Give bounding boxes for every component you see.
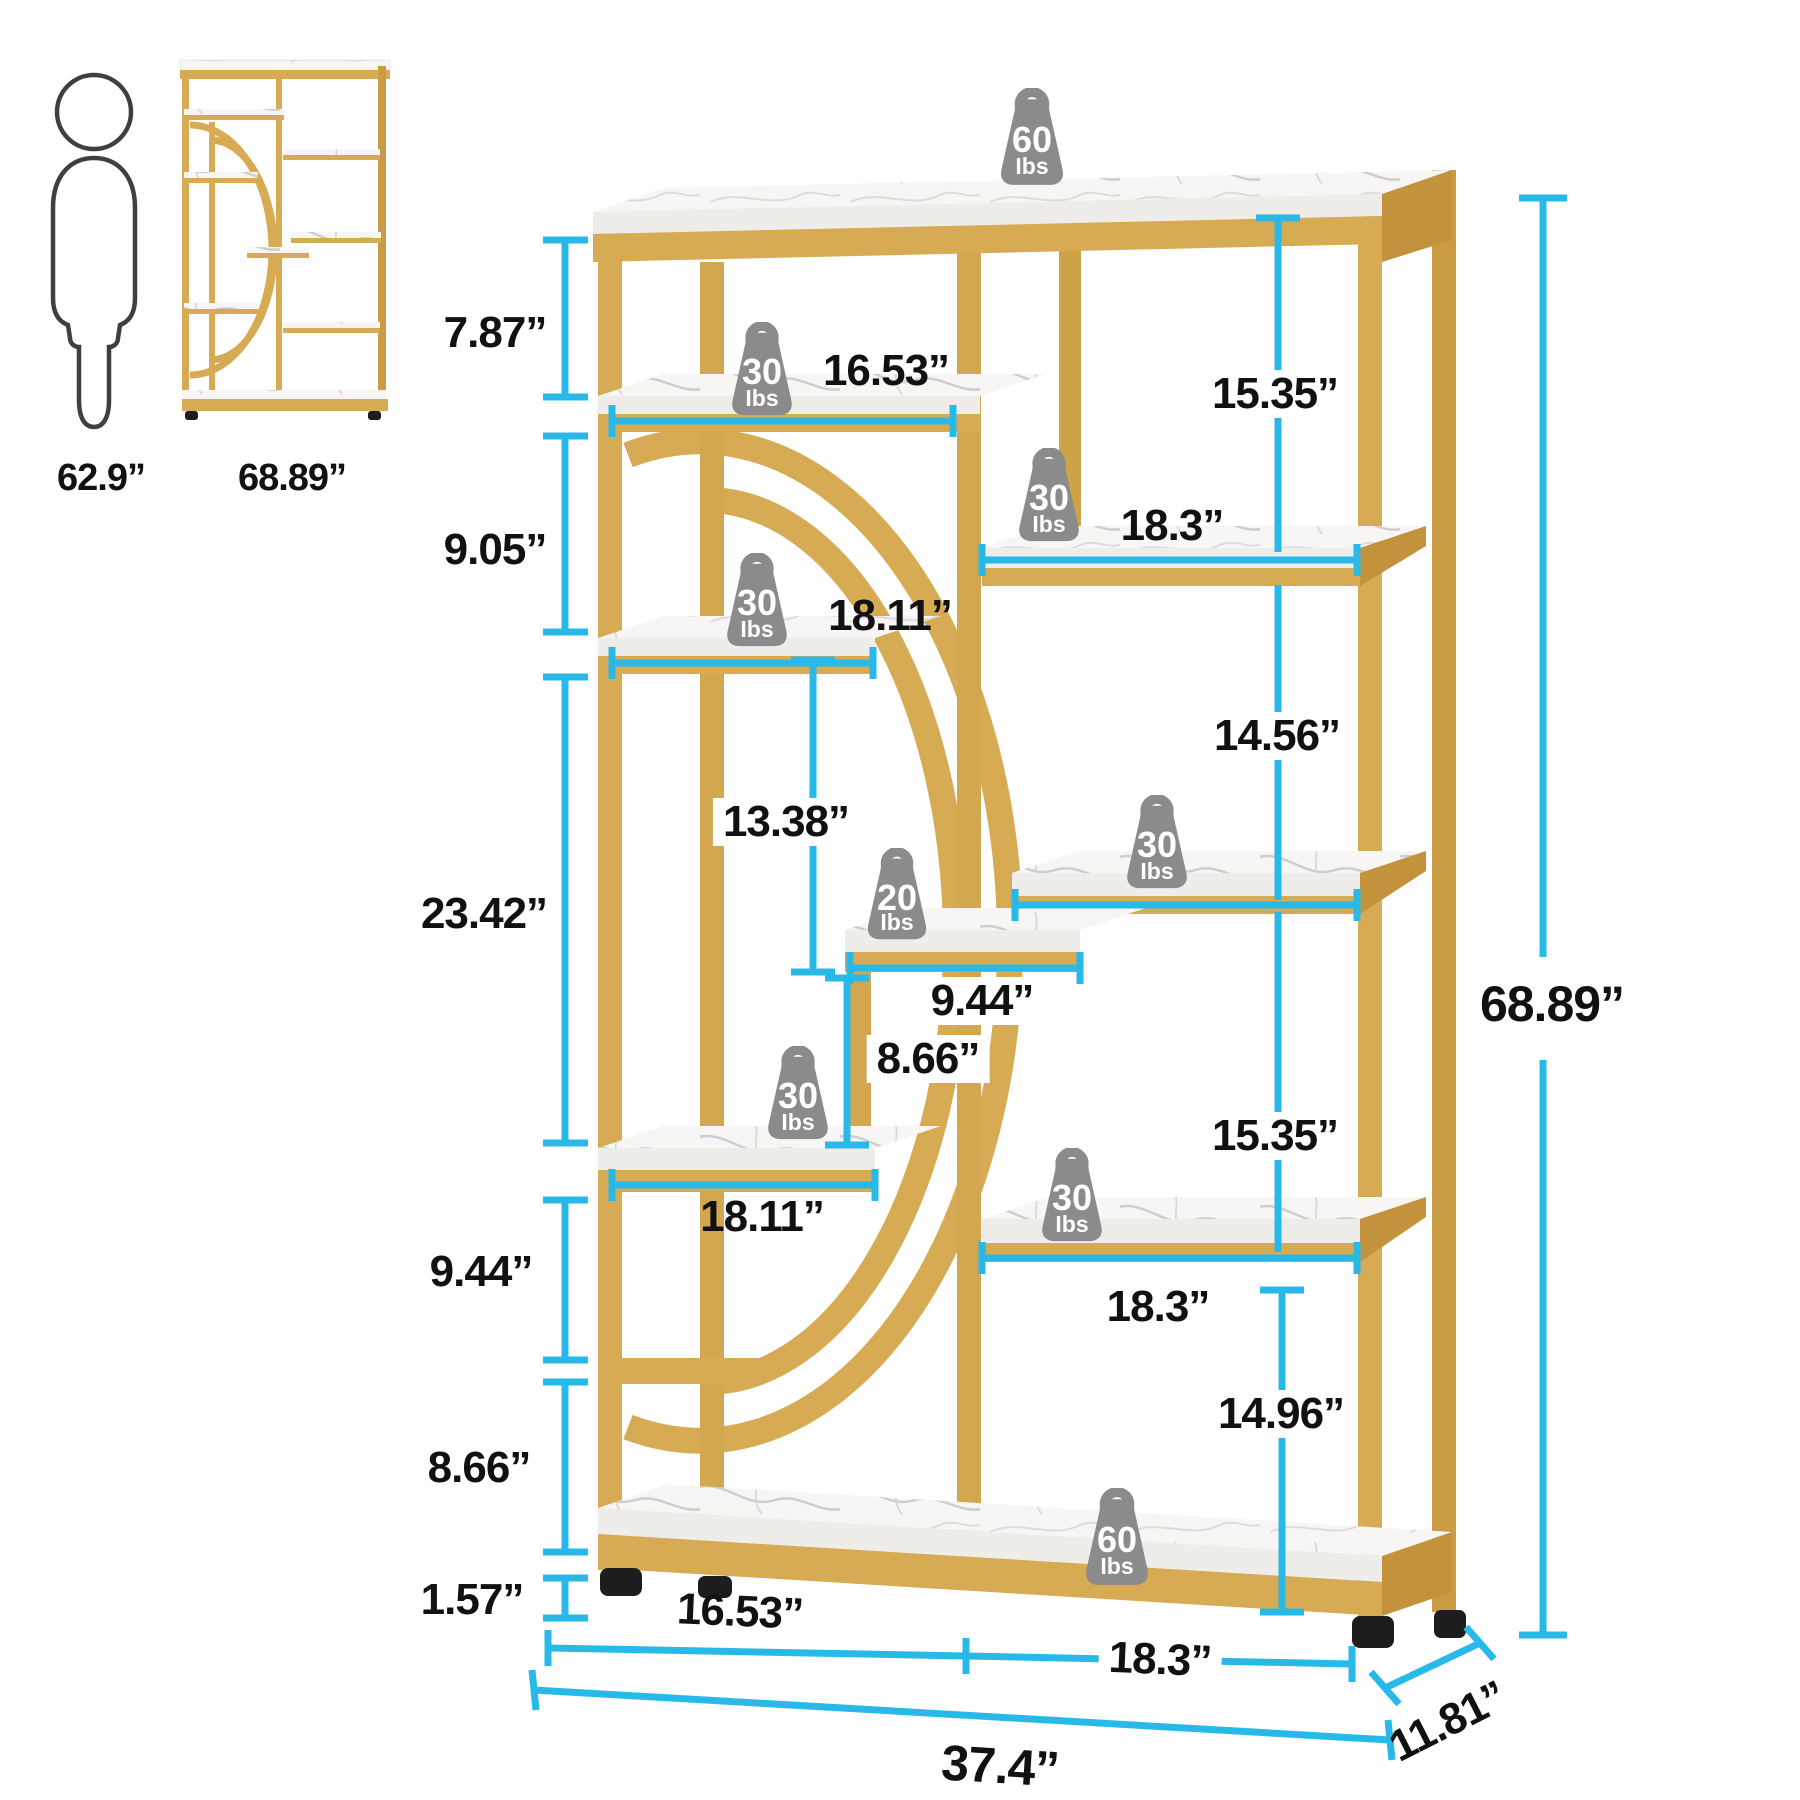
- dim-15-35-top: 15.35”: [1202, 370, 1348, 418]
- weight-unit: Ibs: [713, 387, 811, 410]
- weight-icon-shelf-16-53: 30 Ibs: [713, 322, 811, 420]
- bar-lower-left: [598, 1358, 760, 1384]
- weight-icon-bottom-60: 60 Ibs: [1066, 1488, 1168, 1590]
- weight-icon-shelf-18-11-lower: 30 Ibs: [749, 1046, 847, 1144]
- weight-unit: Ibs: [1066, 1555, 1168, 1578]
- dim-9-44-shelf: 9.44”: [921, 977, 1044, 1025]
- post-back-right: [1432, 170, 1456, 1612]
- dim-14-56: 14.56”: [1204, 712, 1350, 760]
- dim-68-89-total: 68.89”: [1470, 977, 1634, 1031]
- weight-icon-shelf-18-3-top: 30 Ibs: [1000, 448, 1098, 546]
- dim-18-11-lower: 18.11”: [700, 1195, 824, 1239]
- product-dimension-diagram: 60 Ibs 30 Ibs 30 Ibs 30 Ibs 20 Ibs 30 Ib…: [0, 0, 1800, 1800]
- weight-unit: Ibs: [1000, 513, 1098, 536]
- weight-icon-shelf-18-11-upper: 30 Ibs: [708, 553, 806, 651]
- bookshelf-thumbnail: [180, 60, 390, 420]
- post-center: [957, 246, 981, 1534]
- dim-16-53-shelf: 16.53”: [823, 349, 949, 393]
- human-body: [53, 158, 135, 427]
- dim-1-57: 1.57”: [421, 1578, 524, 1622]
- weight-unit: Ibs: [981, 155, 1083, 178]
- dim-16-53-bottom: 16.53”: [676, 1587, 804, 1636]
- post-right-front: [1358, 216, 1382, 1618]
- dim-9-44-left: 9.44”: [430, 1250, 533, 1294]
- dim-18-3-mid: 18.3”: [1107, 1285, 1210, 1329]
- weight-unit: Ibs: [1108, 860, 1206, 883]
- weight-unit: Ibs: [849, 911, 945, 934]
- dim-8-66-left: 8.66”: [428, 1446, 531, 1490]
- person-height-label: 62.9”: [57, 459, 145, 497]
- weight-unit: Ibs: [749, 1111, 847, 1134]
- thumbnail-height-label: 68.89”: [238, 459, 346, 497]
- human-head: [57, 75, 131, 149]
- dim-18-3-top: 18.3”: [1121, 504, 1224, 548]
- dim-8-66-mid: 8.66”: [867, 1035, 990, 1083]
- dim-9-05: 9.05”: [444, 528, 547, 572]
- weight-icon-top-60: 60 Ibs: [981, 88, 1083, 190]
- weight-value: 60: [1066, 1522, 1168, 1558]
- dim-7-87: 7.87”: [444, 311, 547, 355]
- dim-13-38: 13.38”: [713, 798, 859, 846]
- dim-23-42: 23.42”: [421, 892, 547, 936]
- weight-icon-shelf-right-mid: 30 Ibs: [1108, 795, 1206, 893]
- weight-icon-shelf-18-3-lower: 30 Ibs: [1023, 1148, 1121, 1246]
- weight-value: 60: [981, 122, 1083, 158]
- weight-unit: Ibs: [708, 618, 806, 641]
- post-mid-left: [700, 262, 724, 1516]
- dim-14-96: 14.96”: [1208, 1390, 1354, 1438]
- human-figure-outline: [53, 75, 135, 427]
- dim-18-11-upper: 18.11”: [828, 594, 952, 638]
- weight-unit: Ibs: [1023, 1213, 1121, 1236]
- dim-37-4-width: 37.4”: [940, 1737, 1060, 1794]
- weight-icon-shelf-small-20: 20 Ibs: [849, 848, 945, 944]
- dim-15-35-lower: 15.35”: [1202, 1112, 1348, 1160]
- dim-18-3-bottom: 18.3”: [1098, 1633, 1223, 1686]
